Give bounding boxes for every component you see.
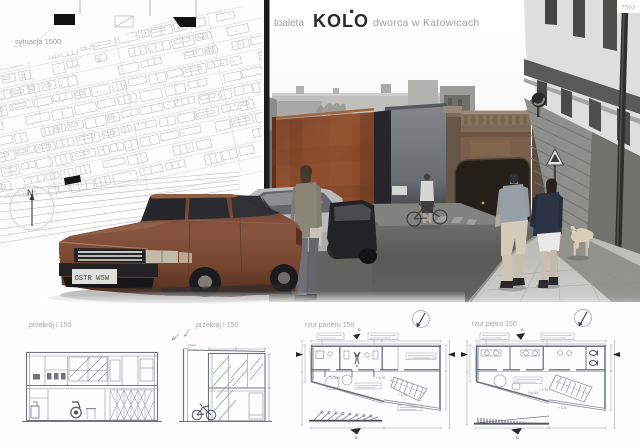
svg-text:B: B xyxy=(521,327,524,332)
svg-text:B: B xyxy=(516,435,519,440)
svg-text:B: B xyxy=(358,327,361,332)
svg-text:KOLO: KOLO xyxy=(313,11,369,31)
svg-text:B: B xyxy=(355,435,358,440)
svg-text:rzut parteru 150: rzut parteru 150 xyxy=(305,322,355,329)
svg-text:przekrój I 150: przekrój I 150 xyxy=(196,322,239,329)
svg-text:+ 1.70: + 1.70 xyxy=(376,376,385,380)
svg-text:+ 1.70: + 1.70 xyxy=(539,388,548,392)
svg-text:rzut piętra 150: rzut piętra 150 xyxy=(472,321,517,328)
svg-text:toaleta: toaleta xyxy=(274,18,304,29)
svg-text:przekrój I 150: przekrój I 150 xyxy=(29,322,72,329)
svg-text:7593: 7593 xyxy=(621,5,636,12)
svg-text:1=0.35: 1=0.35 xyxy=(330,376,340,380)
svg-text:OSTR W5W: OSTR W5W xyxy=(75,275,110,283)
svg-text:sytuacja 1500: sytuacja 1500 xyxy=(15,37,61,46)
svg-text:dworca w Katowicach: dworca w Katowicach xyxy=(373,17,480,29)
svg-text:+ 3.10: + 3.10 xyxy=(558,406,567,410)
svg-text:+ 1.70: + 1.70 xyxy=(398,393,407,397)
svg-text:1=0.35: 1=0.35 xyxy=(528,391,538,395)
